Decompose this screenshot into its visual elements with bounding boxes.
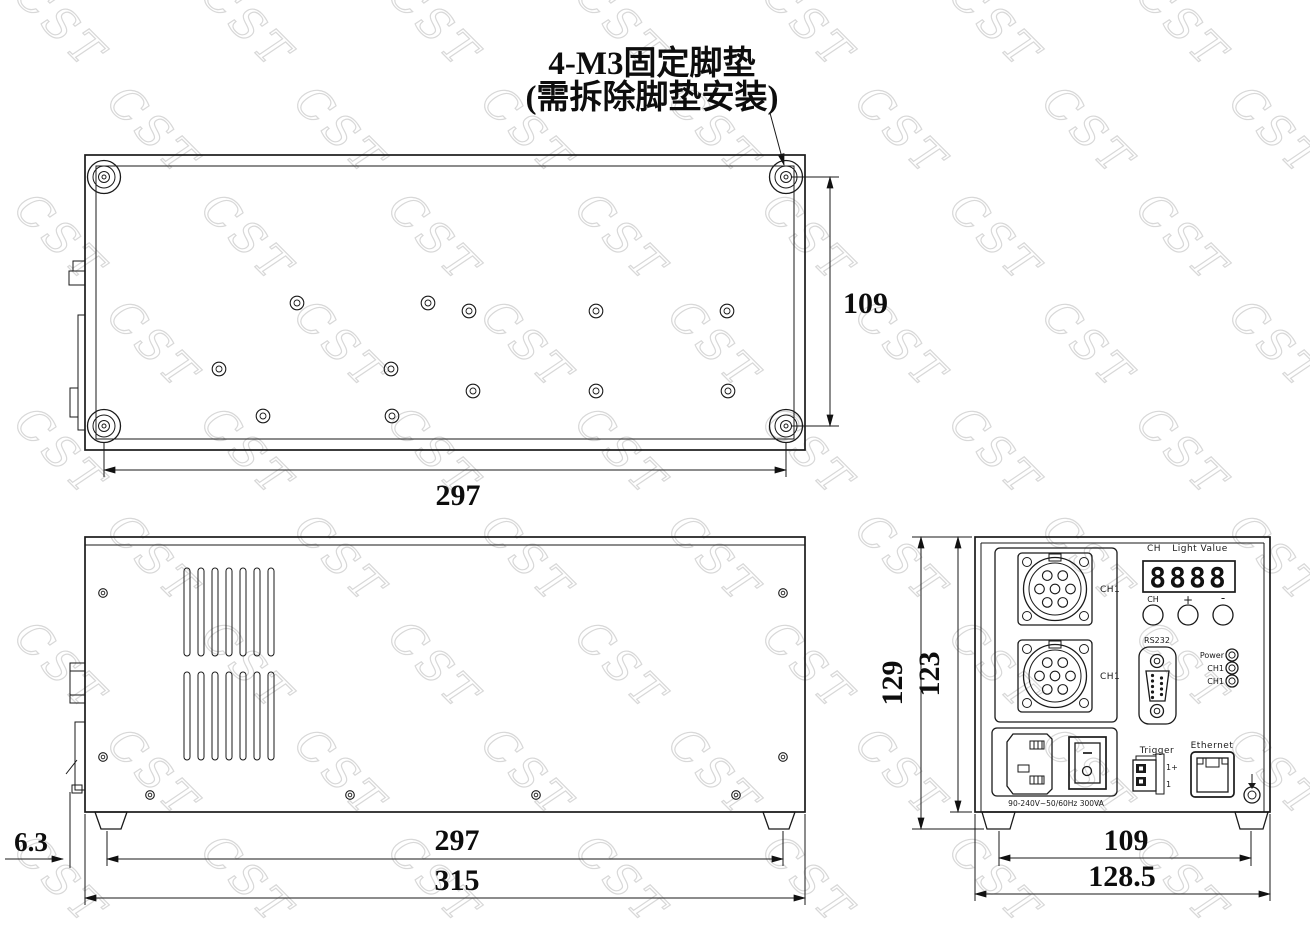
watermark-text: CST [1032,75,1145,188]
watermark-text: CST [565,824,678,937]
led-power-label: Power [1200,651,1225,660]
watermark-text: CST [1032,289,1145,402]
trigger-pin-plus-label: 1+ [1166,763,1178,772]
watermark-text: CST [471,503,584,616]
dim-side-width-value: 315 [435,864,480,897]
watermark-text: CST [471,717,584,830]
watermark-text: CST [191,610,304,723]
watermark-text: CST [565,610,678,723]
watermark-text: CST [284,503,397,616]
rear-foot-left [982,812,1015,829]
title-line1: 4-M3固定脚垫 [548,44,755,82]
watermark-text: CST [471,289,584,402]
ethernet-label: Ethernet [1191,741,1234,751]
watermark-text: CST [4,0,117,81]
watermark-text: CST [378,0,491,81]
drawing-canvas: CSTCSTCSTCSTCSTCSTCSTCSTCSTCSTCSTCSTCSTC… [0,0,1310,937]
display-cluster: CH Light Value 8888 CH + - [1143,544,1235,625]
watermark-text: CST [1219,289,1310,402]
watermark-text: CST [845,75,958,188]
led-ch1-a [1226,662,1238,674]
watermark-text: CST [97,503,210,616]
dim-side-feet-span-value: 297 [435,824,480,857]
watermark-text: CST [1126,396,1239,509]
dim-side-protrusion-value: 6.3 [14,827,48,857]
plus-button [1178,605,1198,625]
title-line2: (需拆除脚垫安装) [526,78,779,116]
display-value-label: Light Value [1172,544,1228,554]
watermark-text: CST [4,182,117,295]
seven-segment-digits: 8888 [1149,561,1228,594]
rear-foot-right [1235,812,1268,829]
watermark-text: CST [191,396,304,509]
led-power [1226,649,1238,661]
watermark-text: CST [658,289,771,402]
watermark-text: CST [284,717,397,830]
db9-pins [1151,674,1163,699]
dim-top-height-value: 109 [843,287,888,320]
watermark-text: CST [658,717,771,830]
watermark-text: CST [752,610,865,723]
watermark-text: CST [4,610,117,723]
watermark-text: CST [284,75,397,188]
watermark-text: CST [378,610,491,723]
display-ch-label: CH [1147,544,1161,554]
dim-rear-overall-height-value: 129 [876,661,909,706]
watermark-text: CST [378,182,491,295]
watermark-text: CST [191,0,304,81]
minus-button [1213,605,1233,625]
watermark-text: CST [97,289,210,402]
watermark-text: CST [1219,75,1310,188]
watermark-text: CST [752,396,865,509]
side-foot-right [763,812,795,829]
watermark-text: CST [939,182,1052,295]
dim-rear-feet-span-value: 109 [1104,824,1149,857]
ethernet-port: Ethernet [1191,741,1234,797]
watermark-text: CST [191,182,304,295]
watermark-text: CST [565,396,678,509]
watermark-text: CST [191,824,304,937]
watermark-text: CST [1032,717,1145,830]
dim-rear-width-value: 128.5 [1088,860,1156,893]
title-leader-line [770,113,784,165]
led-ch1-b-label: CH1 [1207,677,1224,686]
watermark-text: CST [1126,182,1239,295]
connector-label-ch1-bottom: CH1 [1100,672,1120,682]
watermark-text: CST [565,182,678,295]
trigger-terminal: Trigger 1+ 1 [1133,746,1178,794]
watermark-text: CST [1126,0,1239,81]
button-minus-label: - [1221,591,1225,605]
button-ch-label: CH [1147,595,1159,604]
watermark-text: CST [4,396,117,509]
watermark-text: CST [752,824,865,937]
connector-label-ch1-top: CH1 [1100,585,1120,595]
watermark-text: CST [97,717,210,830]
watermark-text: CST [752,182,865,295]
dim-top-width-value: 297 [436,479,481,512]
rs232-label: RS232 [1144,636,1170,645]
power-rating-text: 90-240V~50/60Hz 300VA [1008,799,1105,808]
trigger-pin-minus-label: 1 [1166,780,1171,789]
watermark-text: CST [939,0,1052,81]
dim-rear-body-height-value: 123 [913,652,946,697]
watermark-text: CST [658,503,771,616]
watermark-text: CST [939,824,1052,937]
watermark-text: CST [752,0,865,81]
watermark-text: CST [845,717,958,830]
watermark-text: CST [845,503,958,616]
watermark-text: CST [939,396,1052,509]
bottom-plate-screws [212,296,735,423]
watermark-text: CST [284,289,397,402]
side-foot-left [95,812,127,829]
led-ch1-a-label: CH1 [1207,664,1224,673]
watermark-layer: CSTCSTCSTCSTCSTCSTCSTCSTCSTCSTCSTCSTCSTC… [4,0,1310,937]
